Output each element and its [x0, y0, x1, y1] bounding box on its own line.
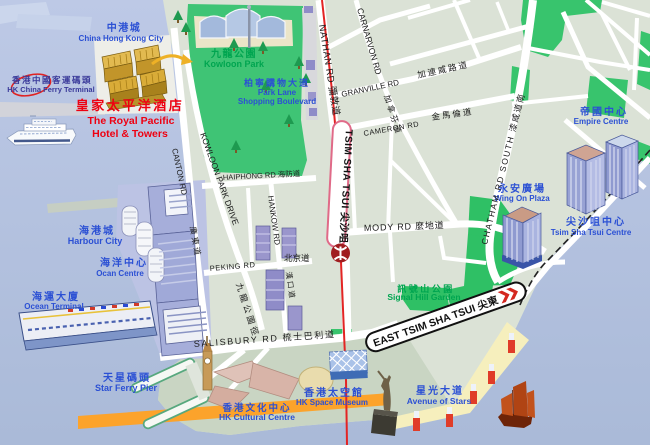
svg-text:HK China Ferry Terminal: HK China Ferry Terminal	[7, 85, 94, 94]
svg-text:The Royal Pacific: The Royal Pacific	[88, 115, 175, 127]
svg-text:Park Lane: Park Lane	[258, 88, 297, 97]
svg-text:Tsim Sha Tsui Centre: Tsim Sha Tsui Centre	[551, 228, 632, 237]
svg-text:Wing On Plaza: Wing On Plaza	[494, 194, 550, 203]
svg-text:海洋中心: 海洋中心	[100, 256, 148, 269]
svg-text:HK Cultural Centre: HK Cultural Centre	[219, 412, 295, 422]
svg-text:Star Ferry Pier: Star Ferry Pier	[95, 383, 158, 393]
svg-text:中港城: 中港城	[107, 21, 142, 34]
svg-text:China Hong Kong City: China Hong Kong City	[79, 34, 164, 43]
svg-text:Signal Hill Garden: Signal Hill Garden	[387, 292, 460, 302]
svg-text:Shopping Boulevard: Shopping Boulevard	[238, 97, 316, 106]
svg-text:Empire Centre: Empire Centre	[574, 117, 629, 126]
svg-text:Ocan Centre: Ocan Centre	[96, 269, 144, 278]
svg-text:Hotel & Towers: Hotel & Towers	[92, 128, 168, 140]
svg-text:香港中國客運碼頭: 香港中國客運碼頭	[11, 75, 92, 85]
svg-text:皇家太平洋酒店: 皇家太平洋酒店	[76, 98, 185, 113]
svg-text:Avenue of Stars: Avenue of Stars	[407, 396, 472, 406]
svg-text:HK Space Museum: HK Space Museum	[296, 398, 368, 407]
svg-text:北京道: 北京道	[284, 253, 310, 263]
svg-text:Harbour City: Harbour City	[68, 236, 123, 246]
svg-text:柏寧購物大道: 柏寧購物大道	[244, 77, 310, 88]
svg-text:Kowloon Park: Kowloon Park	[204, 59, 265, 69]
svg-text:Ocean Terminal: Ocean Terminal	[24, 302, 83, 311]
svg-text:尖沙咀中心: 尖沙咀中心	[566, 215, 626, 228]
